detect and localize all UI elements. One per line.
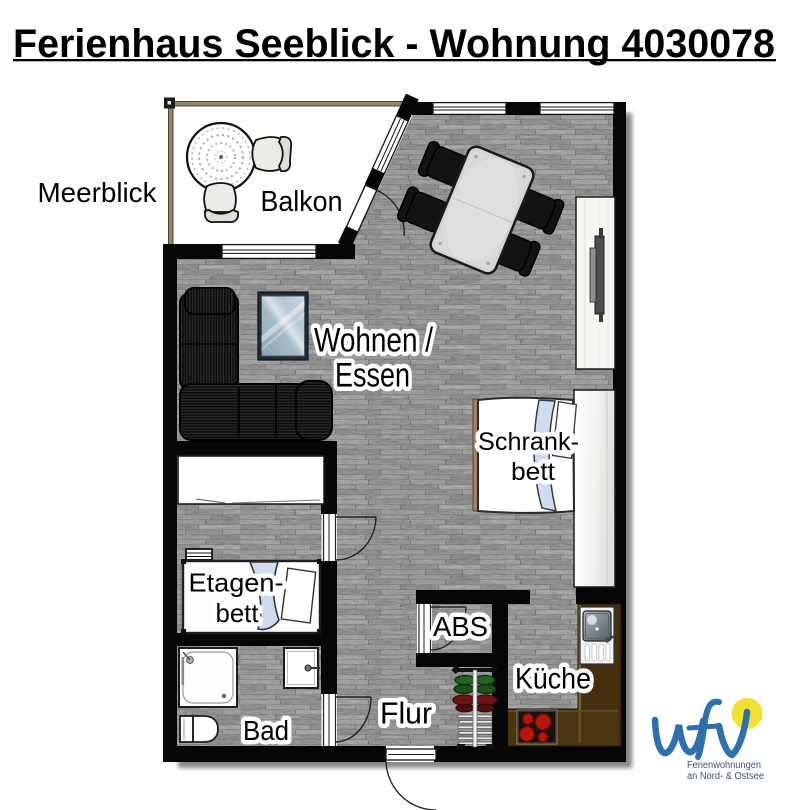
svg-text:ABS: ABS: [433, 611, 488, 642]
svg-text:Ferienwohnungen: Ferienwohnungen: [687, 760, 761, 771]
svg-text:bett: bett: [216, 598, 260, 628]
svg-text:an Nord- & Ostsee: an Nord- & Ostsee: [687, 771, 765, 782]
svg-text:Schrank-: Schrank-: [478, 428, 579, 456]
svg-text:Bad: Bad: [243, 715, 289, 746]
svg-text:Flur: Flur: [380, 696, 432, 731]
svg-text:Balkon: Balkon: [261, 186, 343, 218]
svg-text:Küche: Küche: [515, 663, 591, 696]
svg-text:Wohnen /: Wohnen /: [314, 322, 433, 360]
svg-text:Etagen-: Etagen-: [189, 568, 284, 598]
svg-text:Essen: Essen: [335, 357, 410, 395]
svg-text:bett: bett: [511, 458, 555, 486]
svg-text:Meerblick: Meerblick: [38, 177, 158, 208]
